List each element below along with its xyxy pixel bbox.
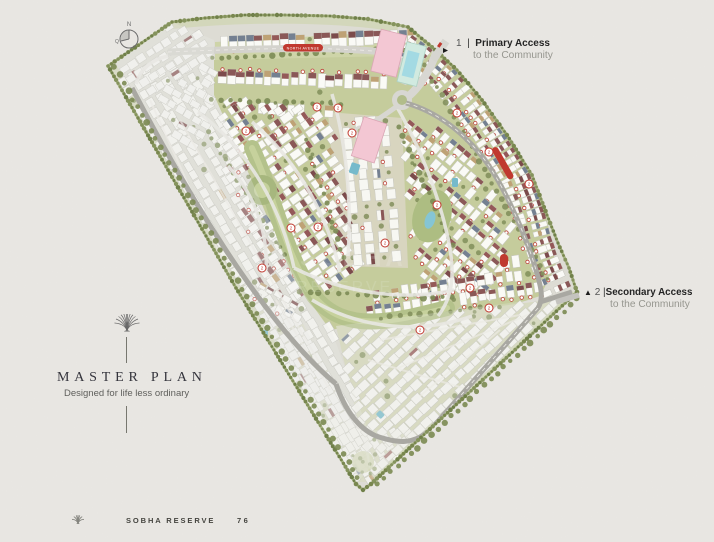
svg-text:Q: Q (115, 39, 119, 45)
svg-text:N: N (127, 22, 131, 28)
svg-text:NORTH AVENUE: NORTH AVENUE (287, 47, 320, 51)
